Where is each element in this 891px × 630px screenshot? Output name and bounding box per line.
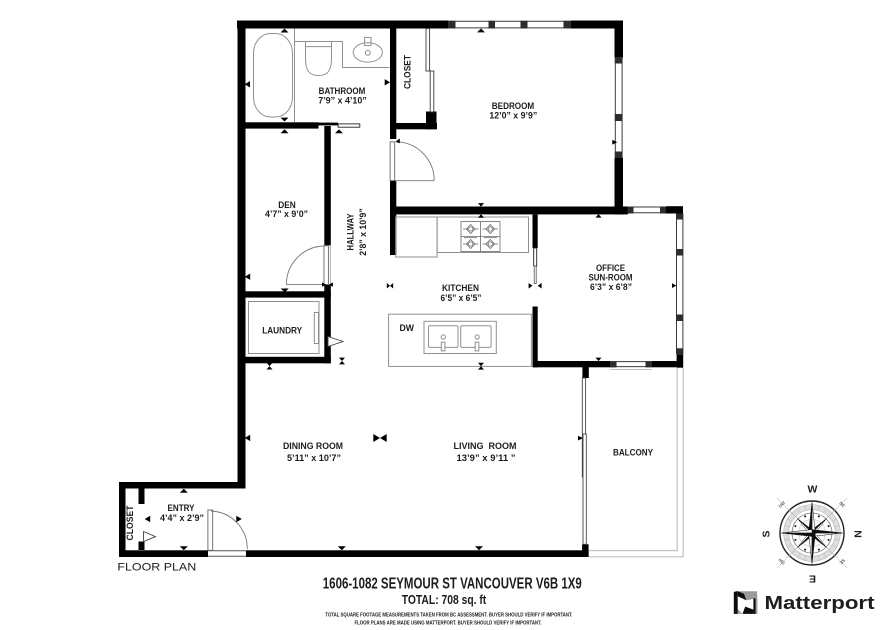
svg-text:W: W <box>808 483 818 495</box>
svg-text:4’4” x 2’9”: 4’4” x 2’9” <box>160 513 204 523</box>
svg-text:FLOOR PLAN: FLOOR PLAN <box>117 562 196 574</box>
svg-text:S: S <box>761 530 773 537</box>
svg-text:2’8” x 10’9”: 2’8” x 10’9” <box>358 208 368 256</box>
svg-text:BALCONY: BALCONY <box>613 448 653 458</box>
svg-text:6’5” x 6’5”: 6’5” x 6’5” <box>441 293 482 303</box>
svg-text:13’9” x 9’11 ”: 13’9” x 9’11 ” <box>457 453 516 463</box>
svg-text:HALLWAY: HALLWAY <box>346 214 356 251</box>
svg-text:N: N <box>851 530 863 538</box>
svg-text:1606-1082 SEYMOUR ST VANCOUVER: 1606-1082 SEYMOUR ST VANCOUVER V6B 1X9 <box>323 576 582 593</box>
svg-text:7’9” x 4’10”: 7’9” x 4’10” <box>318 96 367 106</box>
svg-text:CLOSET: CLOSET <box>125 505 135 540</box>
svg-text:TOTAL: 708 sq. ft: TOTAL: 708 sq. ft <box>402 593 487 607</box>
svg-text:SUN-ROOM: SUN-ROOM <box>589 273 633 283</box>
svg-text:KITCHEN: KITCHEN <box>442 283 479 293</box>
svg-text:OFFICE: OFFICE <box>596 263 625 273</box>
svg-text:CLOSET: CLOSET <box>403 55 413 89</box>
svg-text:4’7” x 9’0”: 4’7” x 9’0” <box>265 209 308 219</box>
svg-text:12’0” x 9’9”: 12’0” x 9’9” <box>489 110 537 120</box>
svg-text:Matterport: Matterport <box>765 592 875 613</box>
svg-text:5’11” x 10’7”: 5’11” x 10’7” <box>287 453 341 463</box>
svg-text:ENTRY: ENTRY <box>168 503 195 513</box>
svg-text:FLOOR PLANS ARE MADE USING MAT: FLOOR PLANS ARE MADE USING MATTERPORT. B… <box>355 621 542 627</box>
svg-text:DW: DW <box>399 323 414 333</box>
svg-text:DINING ROOM: DINING ROOM <box>283 441 343 451</box>
svg-text:TOTAL SQUARE FOOTAGE MEASUREME: TOTAL SQUARE FOOTAGE MEASUREMENTS TAKEN … <box>325 613 572 619</box>
svg-text:E: E <box>809 573 816 585</box>
svg-text:LAUNDRY: LAUNDRY <box>262 326 302 336</box>
svg-text:LIVING ROOM: LIVING ROOM <box>454 441 517 451</box>
svg-text:6’3” x 6’8”: 6’3” x 6’8” <box>590 282 632 292</box>
